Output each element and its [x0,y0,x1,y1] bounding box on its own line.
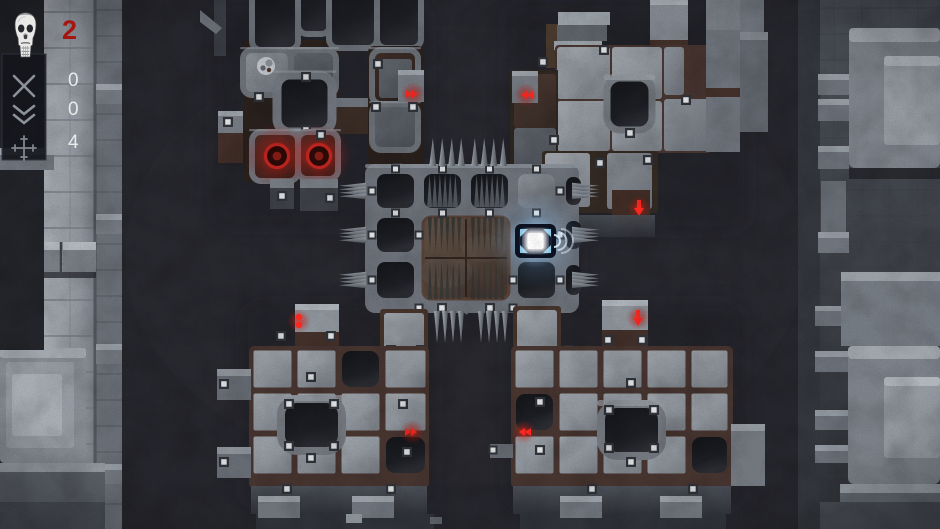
svg-text:0: 0 [68,99,79,120]
svg-text:0: 0 [68,70,79,91]
svg-text:4: 4 [68,132,79,153]
svg-text:2: 2 [62,15,77,45]
